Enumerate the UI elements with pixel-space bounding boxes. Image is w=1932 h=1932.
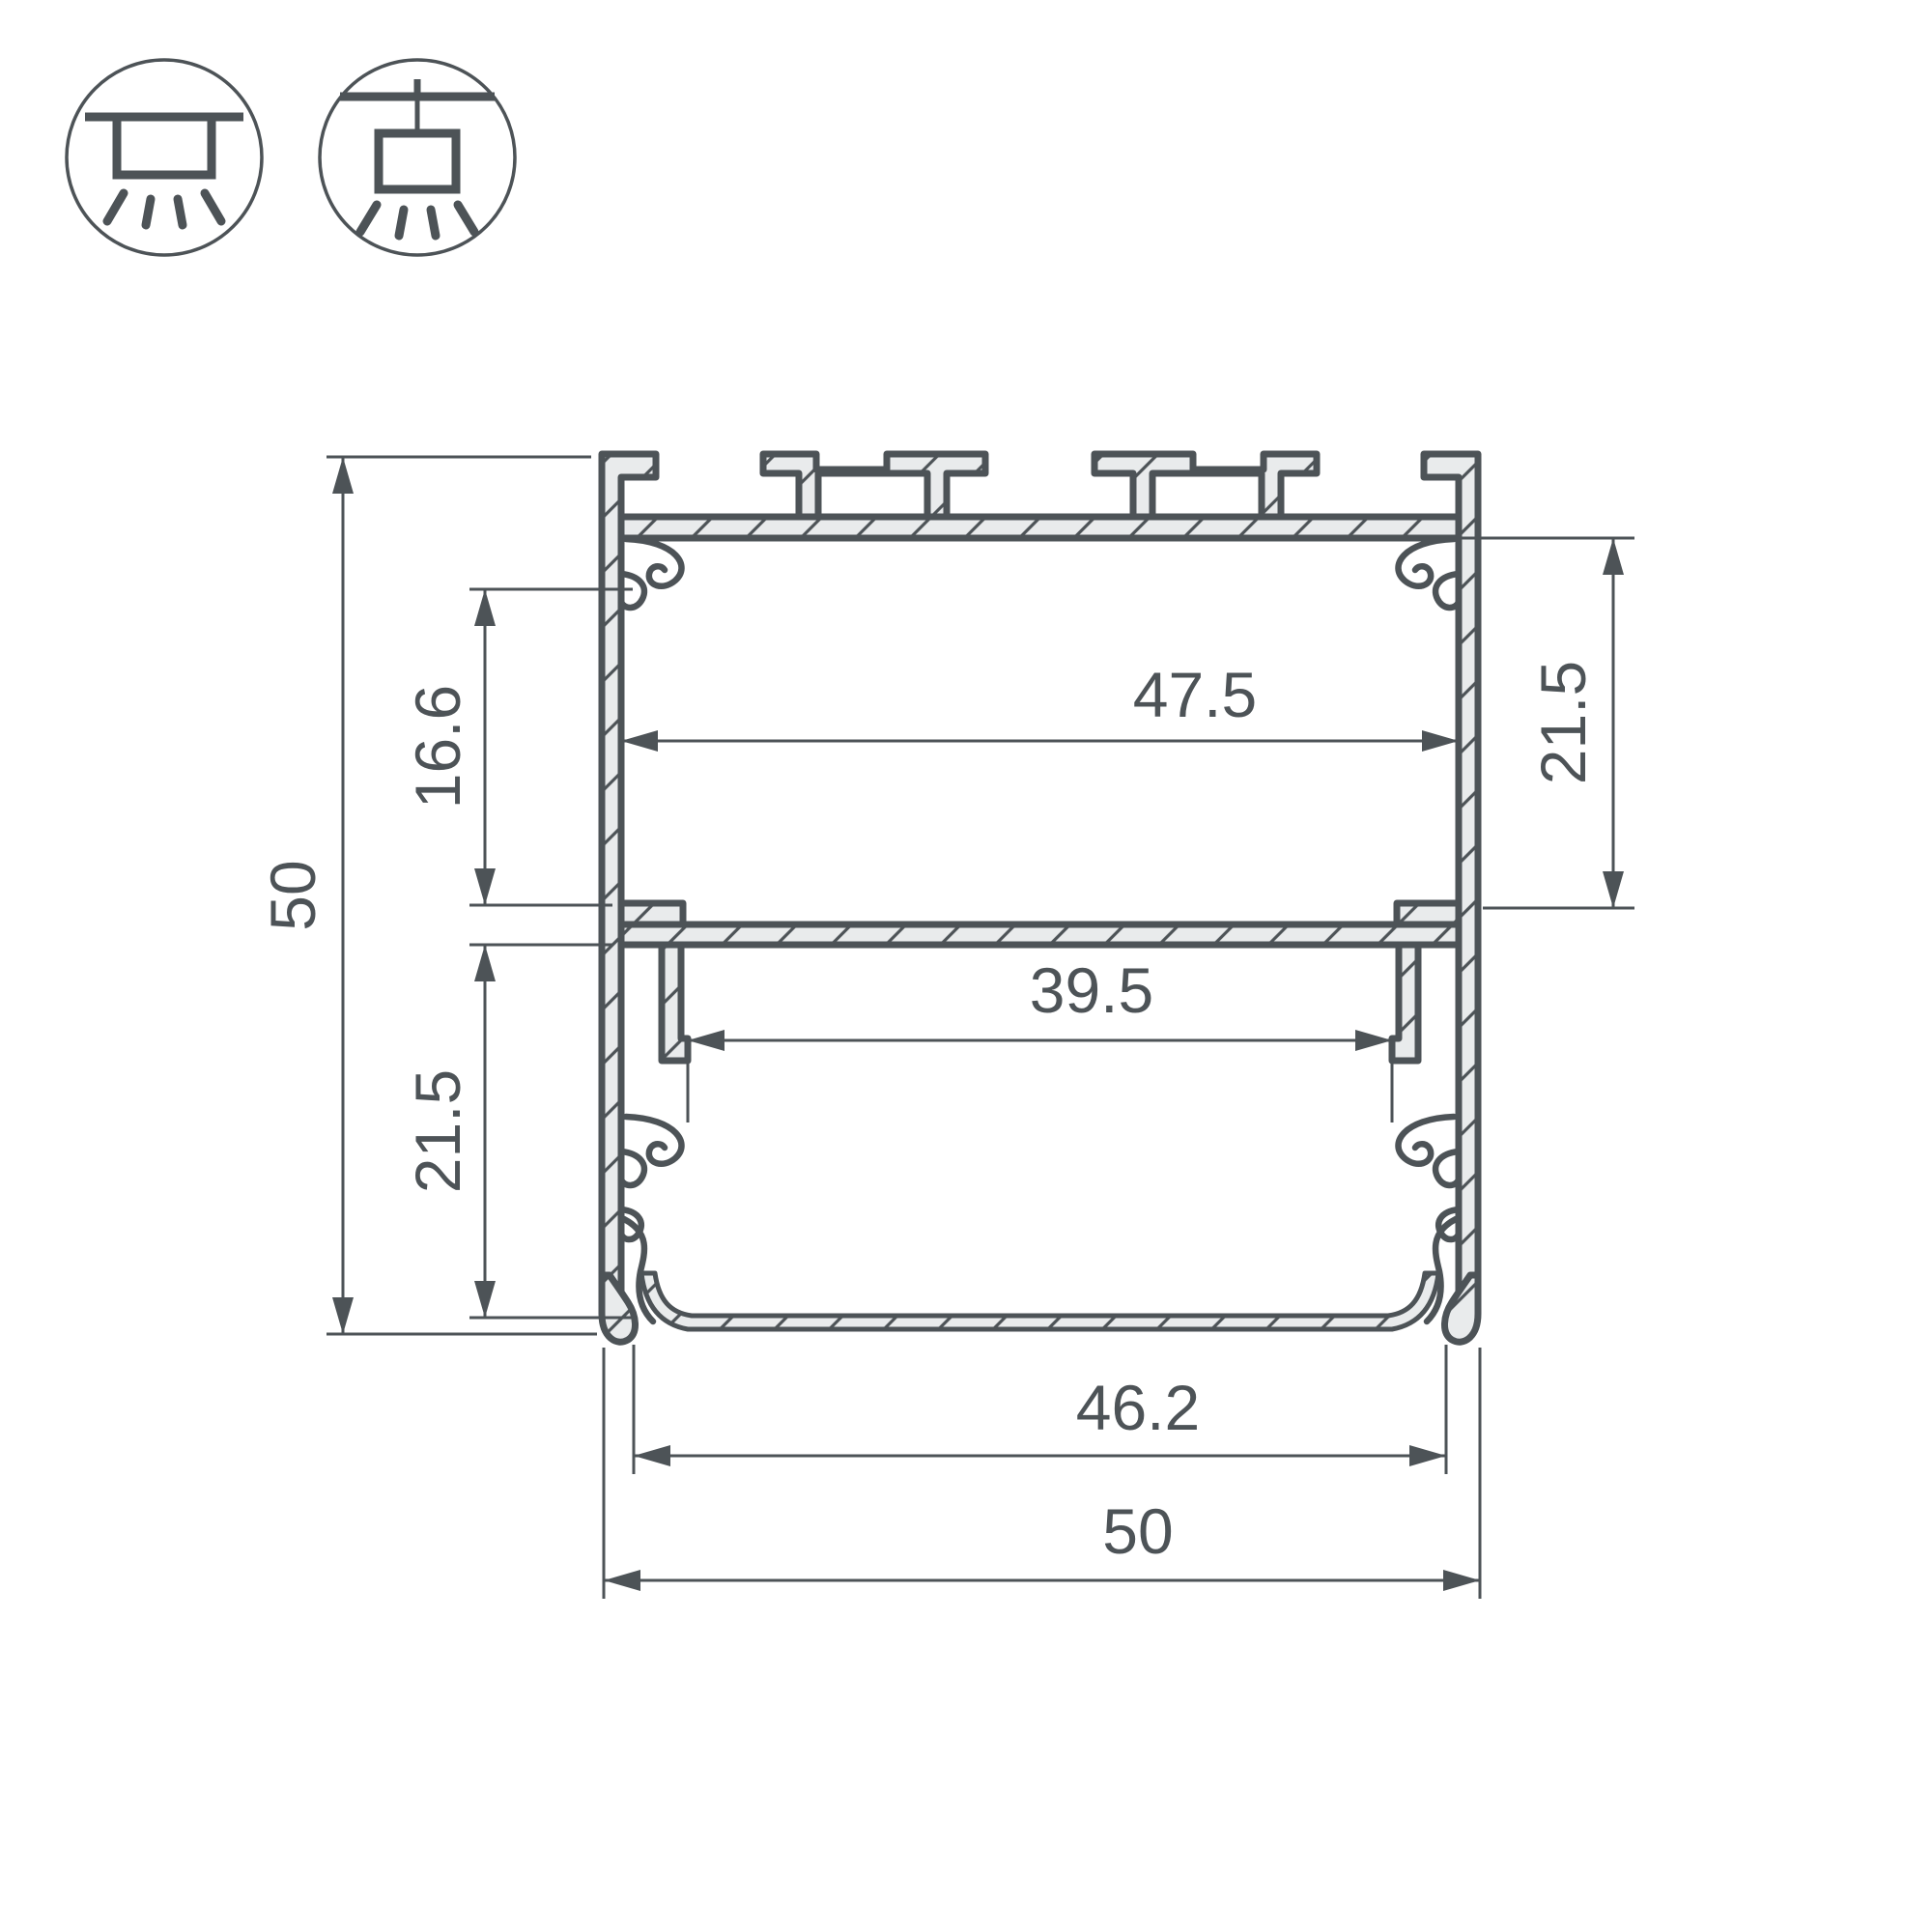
dim-label-top-chamber-right: 21.5 [1527, 661, 1599, 784]
dim-upper-chamber: 16.6 [402, 589, 633, 905]
shelf-hook-right [1392, 945, 1418, 1061]
profile-body [602, 454, 1478, 1342]
clip-lower-left-2 [621, 1151, 644, 1185]
light-rays-icon [360, 205, 474, 236]
profile-top-tab-right [1094, 454, 1317, 517]
dim-label-upper-chamber: 16.6 [402, 685, 473, 809]
technical-drawing-page: 50 16.6 21.5 21.5 [0, 0, 1932, 1932]
screw-boss-top-left-2 [621, 574, 644, 608]
screw-boss-top-right-2 [1435, 574, 1459, 608]
dim-label-overall-height: 50 [257, 860, 328, 930]
dim-top-chamber-right: 21.5 [1350, 538, 1634, 908]
dim-label-inner-width-top: 47.5 [1133, 659, 1257, 730]
shelf-hook-left [662, 945, 688, 1061]
diffuser-cover [641, 1273, 1438, 1329]
clip-lower-right-2 [1435, 1151, 1459, 1185]
dim-label-inner-width-hooks: 39.5 [1030, 954, 1153, 1026]
light-rays-icon [107, 193, 221, 225]
profile-top-plate [621, 517, 1459, 538]
profile-foot-left [602, 1275, 636, 1342]
dim-inner-width-hooks: 39.5 [688, 954, 1392, 1122]
dim-label-diffuser-width: 46.2 [1076, 1372, 1200, 1443]
profile-drawing: 50 16.6 21.5 21.5 [0, 0, 1932, 1932]
surface-mount-icon [67, 60, 262, 255]
dim-diffuser-width: 46.2 [634, 1345, 1446, 1474]
profile-middle-shelf [621, 924, 1459, 945]
dimensions: 50 16.6 21.5 21.5 [257, 457, 1634, 1599]
shelf-rail-left [621, 903, 683, 924]
dim-label-lower-chamber: 21.5 [402, 1069, 473, 1193]
pendant-mount-icon [320, 60, 515, 255]
profile-top-tab-left [763, 454, 985, 517]
dim-inner-width-top: 47.5 [621, 659, 1459, 752]
dim-label-overall-width: 50 [1102, 1495, 1173, 1567]
profile-foot-right [1444, 1275, 1478, 1342]
mount-icons [67, 60, 515, 255]
shelf-rail-right [1397, 903, 1459, 924]
dim-overall-width: 50 [604, 1348, 1480, 1599]
